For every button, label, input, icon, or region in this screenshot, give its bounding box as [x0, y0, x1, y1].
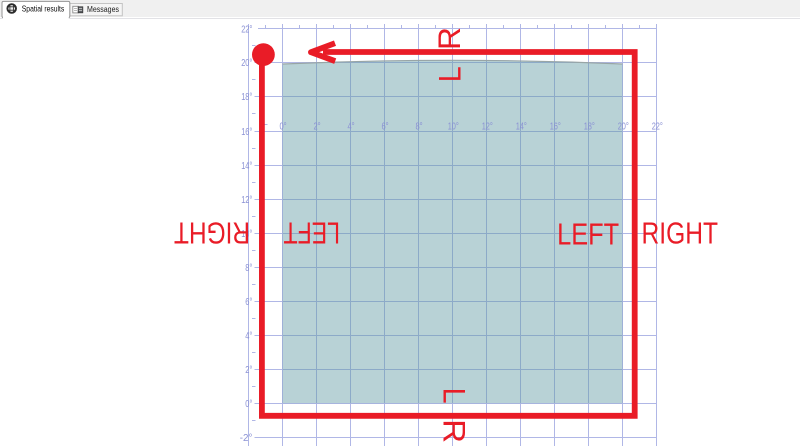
svg-text:20°: 20° — [618, 121, 629, 132]
svg-text:4°: 4° — [245, 331, 252, 342]
svg-text:Spatial results: Spatial results — [22, 5, 65, 14]
svg-text:16°: 16° — [241, 127, 252, 138]
svg-text:18°: 18° — [584, 121, 595, 132]
svg-text:L: L — [437, 388, 473, 404]
svg-text:R: R — [437, 419, 473, 443]
svg-text:14°: 14° — [241, 161, 252, 172]
svg-text:18°: 18° — [241, 92, 252, 103]
svg-text:6°: 6° — [382, 121, 389, 132]
svg-text:22°: 22° — [241, 24, 252, 35]
svg-text:10°: 10° — [448, 121, 459, 132]
svg-text:8°: 8° — [416, 121, 423, 132]
svg-text:2°: 2° — [314, 121, 321, 132]
svg-text:R: R — [431, 27, 467, 50]
svg-text:L: L — [432, 66, 468, 82]
svg-text:14°: 14° — [516, 121, 527, 132]
svg-text:LEFT: LEFT — [283, 216, 340, 251]
svg-text:0°: 0° — [280, 121, 287, 132]
svg-text:Messages: Messages — [87, 5, 119, 14]
svg-text:12°: 12° — [241, 195, 252, 206]
svg-text:12°: 12° — [482, 121, 493, 132]
svg-text:6°: 6° — [245, 297, 252, 308]
svg-text:22°: 22° — [652, 121, 663, 132]
svg-text:2°: 2° — [245, 365, 252, 376]
svg-text:4°: 4° — [348, 121, 355, 132]
svg-text:8°: 8° — [245, 263, 252, 274]
svg-text:LEFT: LEFT — [557, 216, 619, 251]
svg-text:20°: 20° — [241, 58, 252, 69]
svg-text:16°: 16° — [550, 121, 561, 132]
svg-text:0°: 0° — [245, 399, 252, 410]
svg-text:RIGHT: RIGHT — [174, 216, 250, 251]
svg-text:-2°: -2° — [240, 433, 253, 444]
svg-text:RIGHT: RIGHT — [642, 216, 719, 251]
